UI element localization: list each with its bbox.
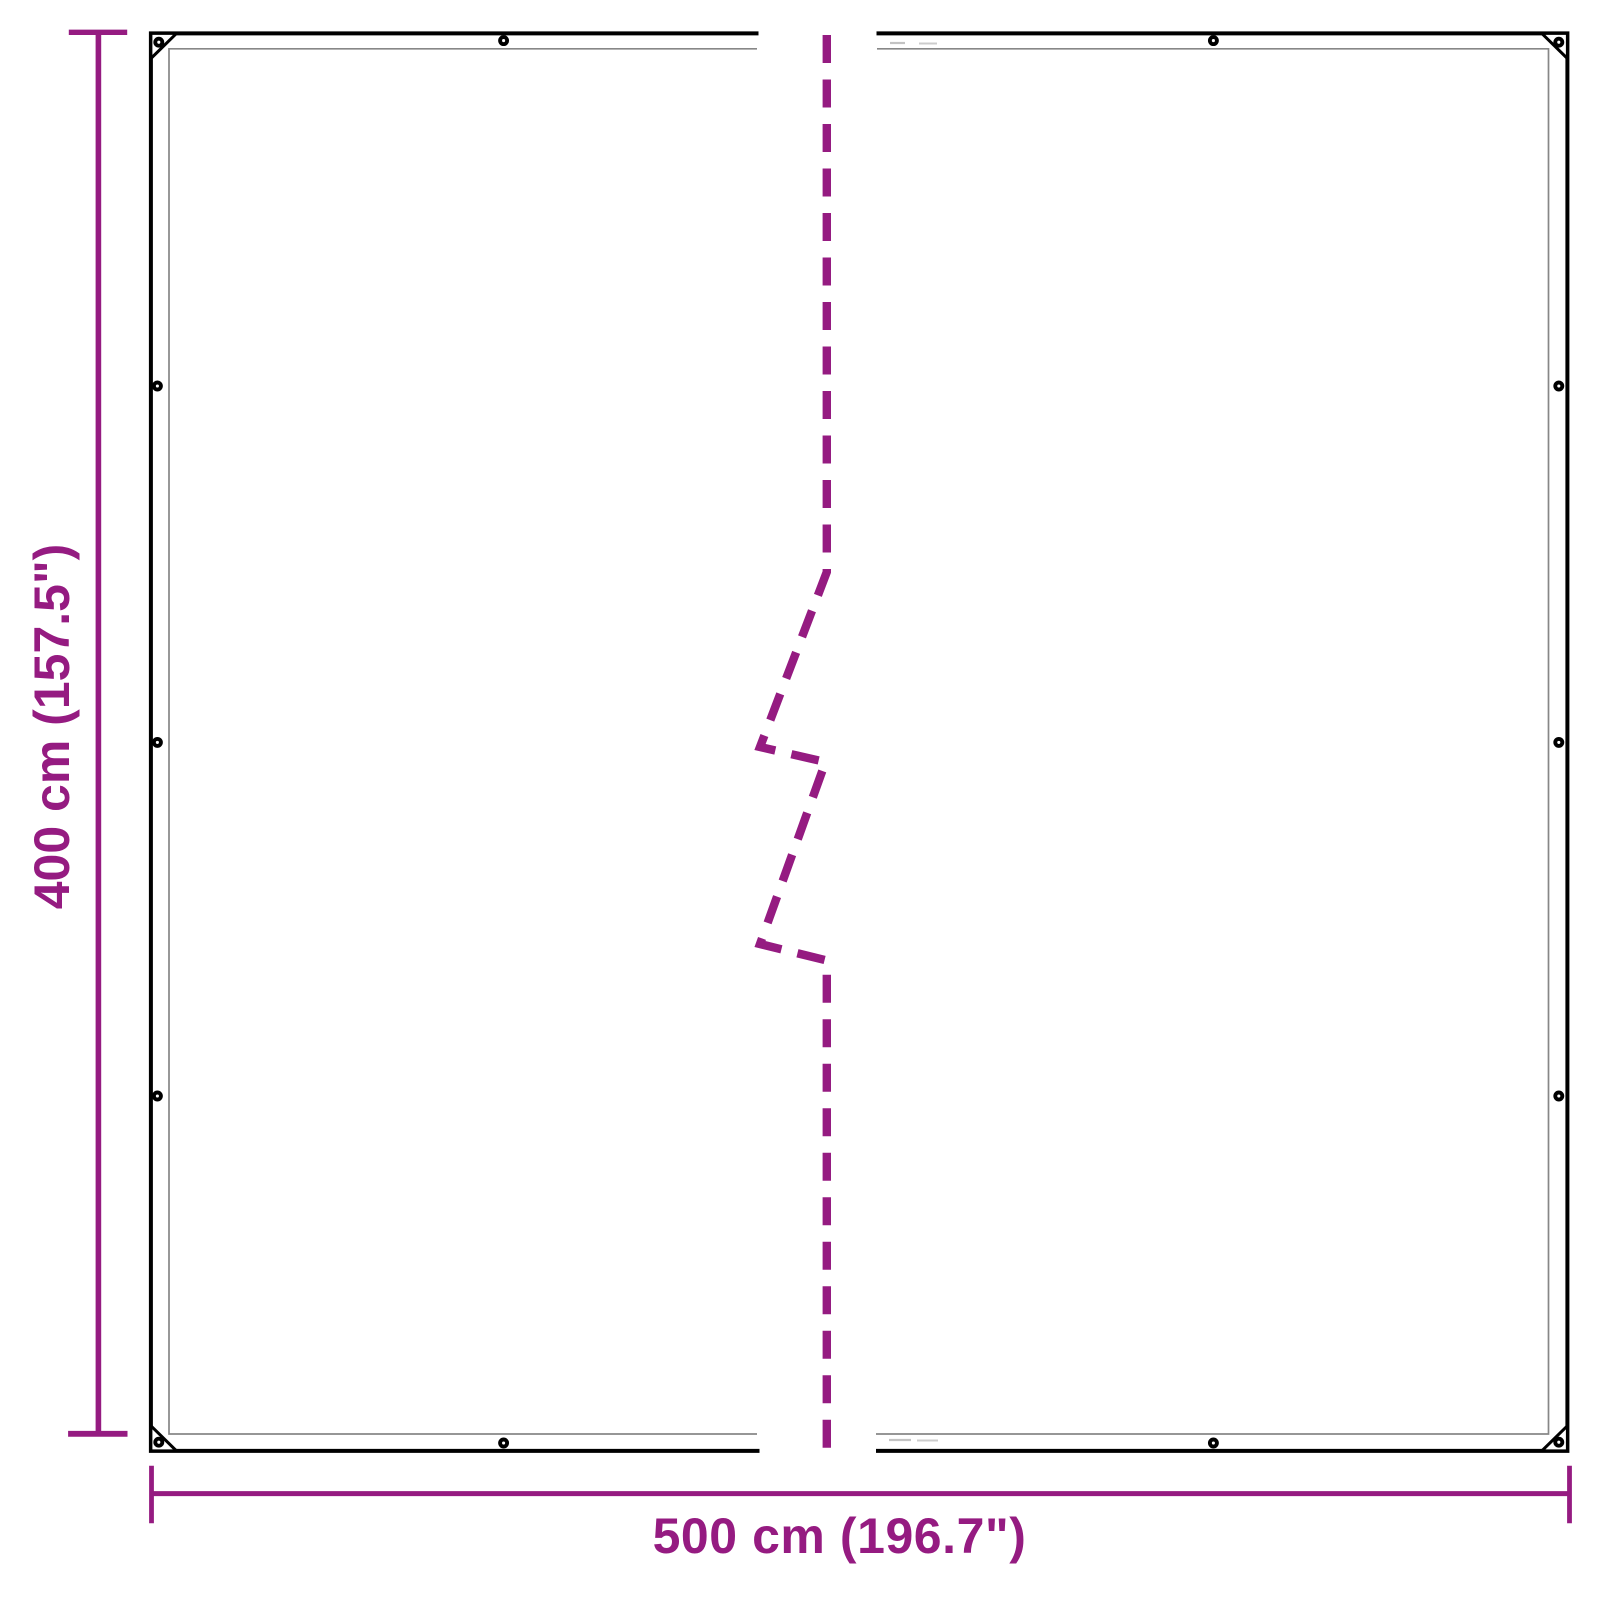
svg-text:400 cm (157.5"): 400 cm (157.5")	[24, 544, 80, 910]
svg-text:500 cm (196.7"): 500 cm (196.7")	[653, 1508, 1027, 1564]
